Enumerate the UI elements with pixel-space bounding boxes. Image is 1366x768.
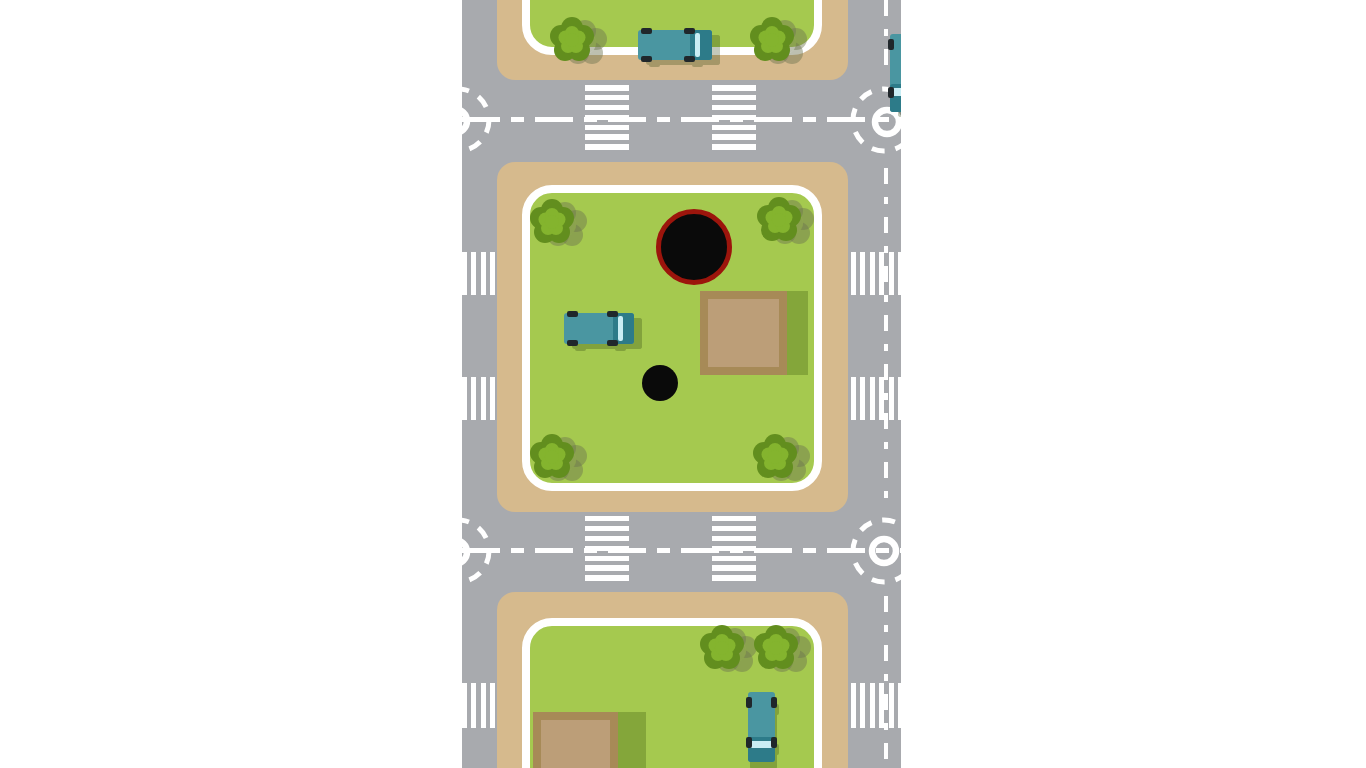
road-center-line bbox=[462, 548, 901, 553]
road-center-line bbox=[884, 168, 888, 508]
car-windshield bbox=[695, 33, 701, 58]
car-wheel bbox=[684, 56, 695, 62]
tree-foliage-highlight bbox=[545, 450, 559, 464]
small-hole[interactable] bbox=[642, 365, 678, 401]
tree-foliage-highlight bbox=[769, 641, 783, 655]
crosswalk bbox=[585, 85, 629, 154]
van-bottom bbox=[746, 692, 777, 762]
car-wheel bbox=[567, 340, 578, 346]
crosswalk bbox=[712, 85, 756, 154]
roundabout bbox=[844, 511, 901, 591]
roundabout-center-ring bbox=[872, 539, 896, 563]
car-wheel bbox=[888, 39, 894, 50]
roundabout-center-ring bbox=[462, 109, 467, 133]
truck-top bbox=[638, 28, 712, 62]
building-pad-bottom bbox=[533, 712, 618, 768]
car-wheel bbox=[641, 28, 652, 34]
tree-foliage-highlight bbox=[768, 450, 782, 464]
building-shadow bbox=[618, 712, 646, 768]
tree-foliage-highlight bbox=[765, 33, 779, 47]
car-wheel bbox=[771, 737, 777, 748]
game-viewport[interactable] bbox=[462, 0, 901, 768]
car-wheel bbox=[746, 697, 752, 708]
crosswalk bbox=[462, 377, 497, 420]
building-shadow bbox=[787, 291, 808, 375]
road-center-line bbox=[462, 117, 901, 122]
page-background bbox=[0, 0, 1366, 768]
roundabout-center-ring bbox=[875, 110, 899, 134]
roundabout bbox=[462, 80, 498, 160]
car-wheel bbox=[888, 87, 894, 98]
player-hole[interactable] bbox=[656, 209, 732, 285]
car-wheel bbox=[771, 697, 777, 708]
car-wheel bbox=[567, 311, 578, 317]
car-windshield bbox=[618, 316, 623, 341]
crosswalk bbox=[462, 683, 497, 728]
tree-foliage-highlight bbox=[565, 33, 579, 47]
car-wheel bbox=[641, 56, 652, 62]
car-wheel bbox=[607, 340, 618, 346]
road-center-line bbox=[884, 596, 888, 768]
crosswalk bbox=[851, 377, 901, 420]
crosswalk bbox=[712, 516, 756, 585]
car-wheel bbox=[607, 311, 618, 317]
roundabout-center-ring bbox=[462, 540, 467, 564]
car-right-edge bbox=[888, 34, 901, 112]
tree-foliage-highlight bbox=[545, 215, 559, 229]
tree-foliage-highlight bbox=[715, 641, 729, 655]
tree-foliage-highlight bbox=[772, 213, 786, 227]
crosswalk bbox=[585, 516, 629, 585]
crosswalk bbox=[851, 252, 901, 295]
crosswalk bbox=[462, 252, 497, 295]
car-windshield bbox=[750, 741, 772, 748]
building-pad-middle bbox=[700, 291, 787, 375]
crosswalk bbox=[851, 683, 901, 728]
car-wheel bbox=[746, 737, 752, 748]
truck-middle bbox=[564, 311, 634, 346]
roundabout bbox=[462, 511, 498, 591]
car-wheel bbox=[684, 28, 695, 34]
